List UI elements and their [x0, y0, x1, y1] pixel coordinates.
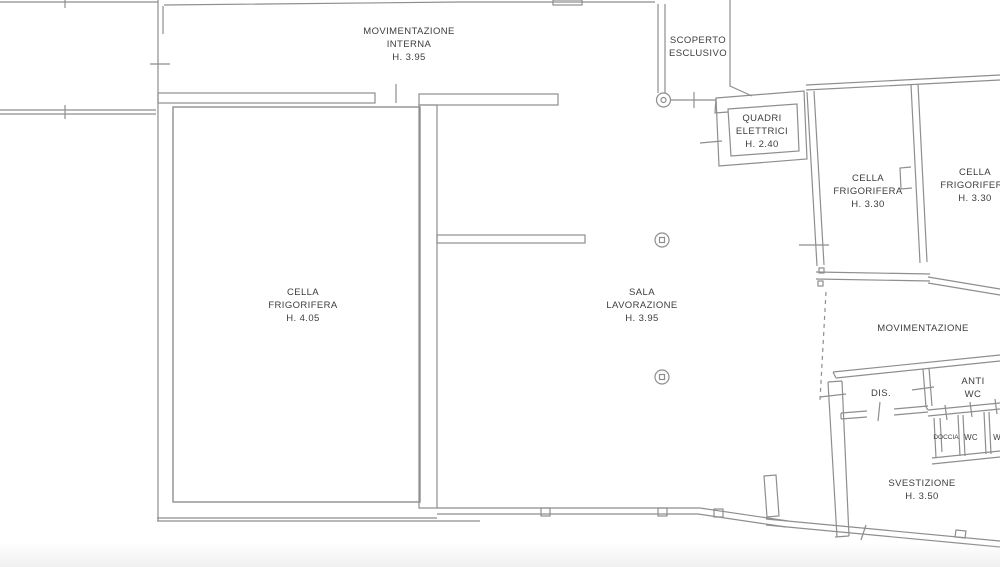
room-label-doccia: DOCCIA: [933, 434, 958, 442]
room-label-sala-lavorazione: SALA LAVORAZIONE H. 3.95: [606, 286, 677, 325]
room-label-movimentazione: MOVIMENTAZIONE: [877, 322, 968, 335]
room-label-cella-frigorifera-1: CELLA FRIGORIFERA H. 3.30: [833, 172, 902, 211]
walls-top-left: [0, 0, 170, 521]
room-label-quadri-elettrici: QUADRI ELETTRICI H. 2.40: [736, 112, 788, 151]
room-label-svestizione: SVESTIZIONE H. 3.50: [888, 477, 955, 503]
room-label-dis: DIS.: [871, 387, 891, 400]
column-symbol: [655, 370, 669, 384]
room-label-wc-1: WC: [964, 433, 978, 443]
floor-plan-drawing: [0, 0, 1000, 567]
room-label-cella-frigorifera-2: CELLA FRIGORIFERA H. 3.30: [940, 166, 1000, 205]
room-label-cella-frigorifera-grande: CELLA FRIGORIFERA H. 4.05: [268, 286, 337, 325]
south-diagonal-walls: [764, 475, 1000, 547]
column-symbol: [655, 233, 669, 247]
room-label-scoperto-esclusivo: SCOPERTO ESCLUSIVO: [669, 34, 727, 60]
floor-plan-page: MOVIMENTAZIONE INTERNA H. 3.95 SCOPERTO …: [0, 0, 1000, 567]
sala-lavorazione-walls: [419, 94, 788, 527]
cold-rooms-right-walls: [799, 75, 1000, 400]
room-label-movimentazione-interna: MOVIMENTAZIONE INTERNA H. 3.95: [363, 25, 454, 64]
room-label-wc-2: WC: [993, 433, 1000, 443]
room-label-anti-wc: ANTI WC: [961, 375, 984, 401]
